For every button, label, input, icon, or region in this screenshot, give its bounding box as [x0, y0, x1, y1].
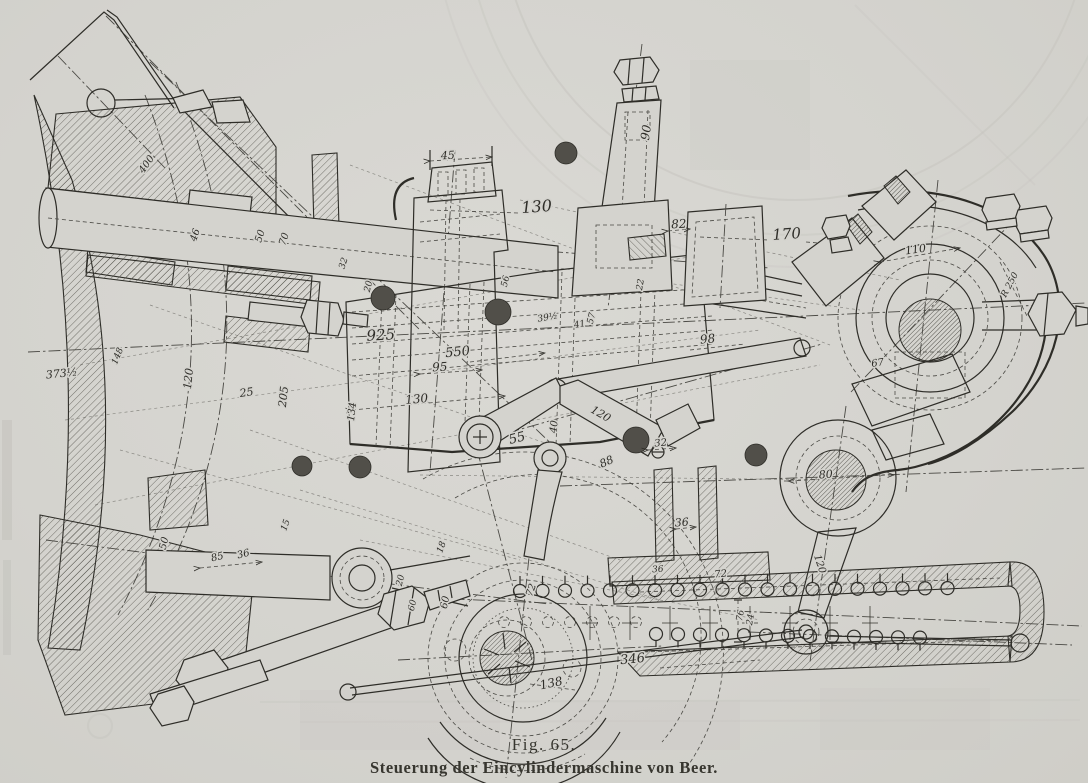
dimension-label: 18	[435, 540, 448, 554]
dimension-label: 15	[279, 518, 292, 532]
eccentric-hub	[780, 420, 896, 654]
dimension-label: 134	[346, 402, 359, 422]
dimension-label: 88	[598, 453, 616, 471]
dimension-label: 25	[238, 385, 255, 400]
dimension-label: 110	[904, 242, 927, 258]
dimension-label: 98	[699, 331, 716, 347]
dimension-label: 24	[745, 613, 757, 627]
dimension-label: 32	[654, 437, 668, 449]
dimension-label: 130	[405, 391, 429, 407]
dimension-label: 925	[366, 325, 396, 344]
dimension-label: 36	[674, 516, 689, 530]
dimension-label: 205	[276, 386, 291, 409]
dimension-label: 72	[714, 568, 728, 580]
dimension-label: 36	[652, 565, 664, 576]
dimension-label: 138	[539, 674, 565, 693]
bearing-housing	[792, 170, 1088, 492]
dimension-label: 57	[586, 311, 599, 325]
dimension-label: 20	[395, 573, 408, 588]
dimension-label: 67	[871, 357, 886, 370]
scanned-page: 451308290170110R 25092555095130134373½14…	[0, 0, 1088, 783]
dimension-label: 41	[572, 319, 586, 331]
dimension-label: 95	[432, 360, 448, 375]
engineering-drawing: 451308290170110R 25092555095130134373½14…	[0, 0, 1088, 783]
figure-title: Steuerung der Eincylindermaschine von Be…	[0, 758, 1088, 778]
cylinder-section	[30, 10, 339, 715]
dimension-label: 170	[772, 224, 802, 244]
dimension-label: 550	[445, 344, 471, 362]
dimension-label: 40	[548, 419, 560, 434]
dimension-label: 90	[638, 124, 654, 141]
dimension-label: 45	[439, 149, 455, 163]
dimension-label: R 250	[999, 271, 1021, 300]
dimension-label: 82	[671, 217, 687, 232]
dimension-label: 55	[507, 429, 527, 448]
dimension-label: 80	[818, 468, 833, 482]
dimension-label: 148	[110, 346, 126, 366]
dimension-label: 39½	[537, 310, 559, 324]
dimension-label: 346	[620, 651, 646, 669]
dimension-label: 120	[181, 368, 196, 390]
figure-number: Fig. 65.	[0, 735, 1088, 755]
dimension-label: 130	[521, 196, 553, 217]
